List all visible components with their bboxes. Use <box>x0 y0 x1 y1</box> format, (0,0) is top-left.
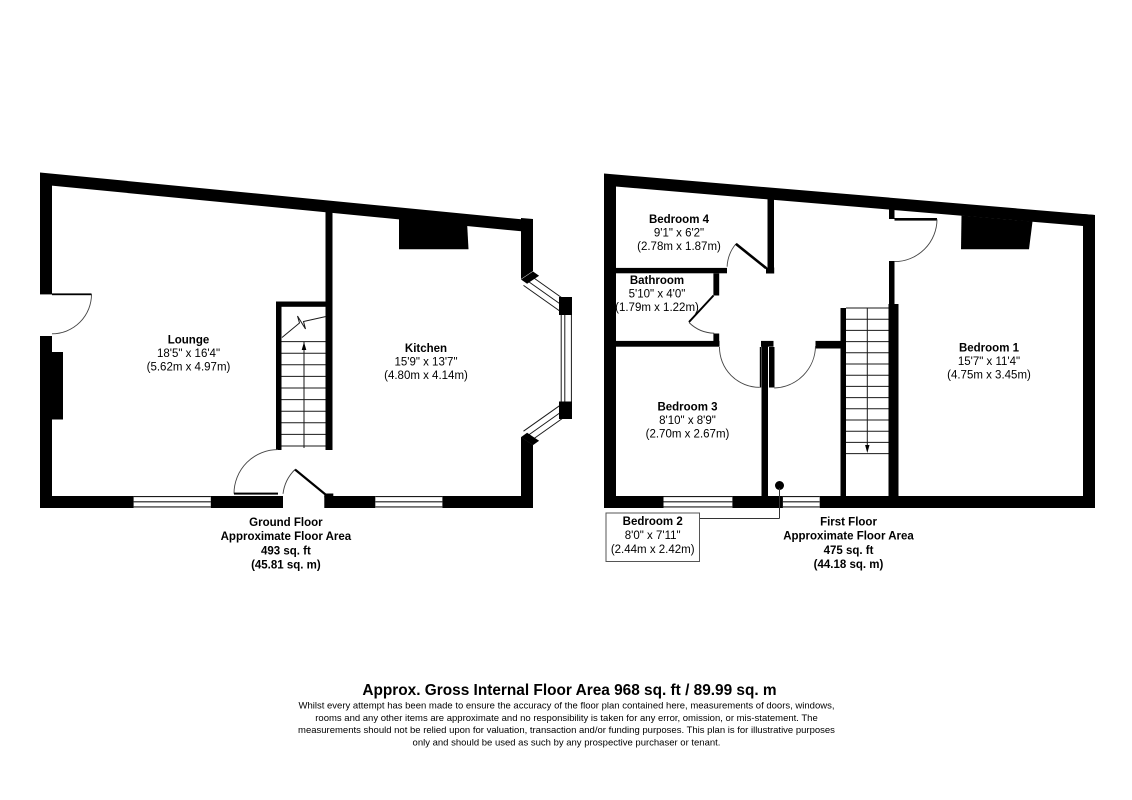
svg-text:5'10" x 4'0": 5'10" x 4'0" <box>629 289 686 301</box>
svg-text:Bathroom: Bathroom <box>630 275 684 287</box>
svg-text:Lounge: Lounge <box>168 334 210 346</box>
svg-text:15'7" x 11'4": 15'7" x 11'4" <box>958 356 1020 368</box>
svg-text:Ground Floor: Ground Floor <box>249 517 323 529</box>
svg-text:(4.75m x 3.45m): (4.75m x 3.45m) <box>947 370 1031 382</box>
svg-text:Bedroom 4: Bedroom 4 <box>649 214 710 226</box>
svg-text:9'1" x 6'2": 9'1" x 6'2" <box>654 228 704 240</box>
svg-text:Whilst every attempt has been: Whilst every attempt has been made to en… <box>299 701 835 712</box>
svg-text:(45.81 sq. m): (45.81 sq. m) <box>251 560 321 572</box>
svg-text:Bedroom 1: Bedroom 1 <box>959 343 1020 355</box>
svg-text:Bedroom 3: Bedroom 3 <box>657 402 717 414</box>
svg-text:(2.44m x 2.42m): (2.44m x 2.42m) <box>611 544 695 556</box>
svg-text:8'0" x 7'11": 8'0" x 7'11" <box>625 530 681 542</box>
svg-text:measurements should not be rel: measurements should not be relied upon f… <box>298 725 835 736</box>
svg-text:(4.80m x 4.14m): (4.80m x 4.14m) <box>384 370 468 382</box>
svg-text:(2.70m x 2.67m): (2.70m x 2.67m) <box>646 429 730 441</box>
svg-text:(2.78m x 1.87m): (2.78m x 1.87m) <box>637 241 721 253</box>
svg-text:(1.79m x 1.22m): (1.79m x 1.22m) <box>615 302 699 314</box>
svg-text:(44.18 sq. m): (44.18 sq. m) <box>814 559 884 571</box>
svg-text:only and should be used as suc: only and should be used as such by any p… <box>413 737 721 748</box>
svg-text:rooms and any other items are: rooms and any other items are approximat… <box>315 713 818 724</box>
svg-text:Approx. Gross Internal Floor A: Approx. Gross Internal Floor Area 968 sq… <box>362 682 776 699</box>
svg-text:Kitchen: Kitchen <box>405 343 447 355</box>
svg-text:Approximate Floor Area: Approximate Floor Area <box>221 531 352 543</box>
svg-text:Approximate Floor Area: Approximate Floor Area <box>783 531 914 543</box>
svg-text:475 sq. ft: 475 sq. ft <box>824 545 874 557</box>
svg-text:18'5" x 16'4": 18'5" x 16'4" <box>157 348 220 360</box>
svg-text:15'9" x 13'7": 15'9" x 13'7" <box>394 357 457 369</box>
svg-text:493 sq. ft: 493 sq. ft <box>261 545 311 557</box>
svg-text:First Floor: First Floor <box>820 516 877 528</box>
svg-text:8'10" x 8'9": 8'10" x 8'9" <box>659 415 716 427</box>
svg-text:Bedroom 2: Bedroom 2 <box>623 516 683 528</box>
svg-text:(5.62m x 4.97m): (5.62m x 4.97m) <box>147 361 231 373</box>
